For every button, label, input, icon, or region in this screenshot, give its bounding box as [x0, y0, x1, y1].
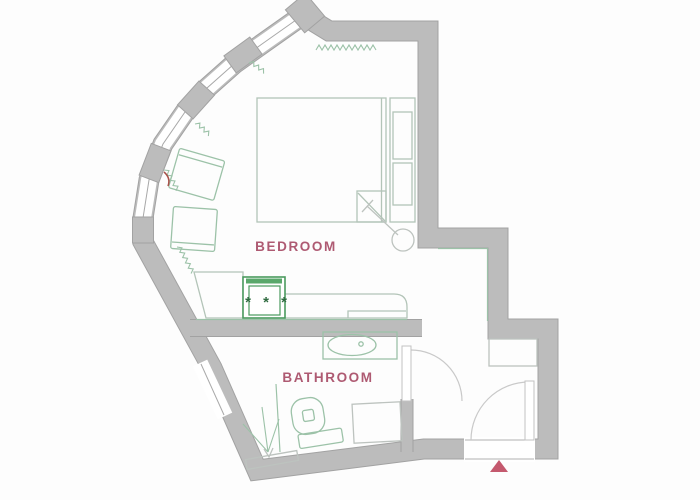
wall-accent-mark — [164, 172, 169, 186]
toilet — [289, 393, 343, 449]
armchair — [171, 207, 218, 252]
wall-pier — [133, 217, 154, 243]
entrance-door-swing — [471, 382, 529, 440]
stove-back-panel — [246, 279, 282, 284]
curtain-squiggle — [195, 121, 211, 136]
kitchenette: * * * — [194, 272, 407, 318]
shower-glass-partition — [276, 384, 280, 452]
bedroom-label: BEDROOM — [255, 239, 337, 254]
sink-basin — [328, 335, 376, 356]
nightstand-shelf — [393, 112, 412, 159]
bathroom-door-swing — [411, 350, 462, 401]
nightstand-shelf — [393, 163, 412, 205]
stove: * * * — [243, 277, 291, 318]
floor-lamp-shade — [392, 229, 414, 251]
kitchen-counter-left — [194, 272, 243, 318]
hallway-closet — [489, 339, 537, 366]
armchair — [168, 148, 224, 200]
bathroom-label: BATHROOM — [282, 370, 373, 385]
stove-burners: * * * — [245, 294, 291, 311]
curtain-squiggle — [249, 60, 266, 74]
entrance-opening — [464, 437, 535, 462]
sink-faucet — [359, 342, 363, 346]
bathroom-door-leaf — [402, 346, 411, 401]
floor-plan-drawing: BEDROOM * * * BATHROOM — [0, 0, 700, 500]
wall-pier — [139, 143, 171, 182]
curtain-squiggle — [316, 45, 376, 50]
exterior-walls — [133, 0, 549, 470]
entrance-door-leaf — [525, 381, 534, 440]
floor-plan: BEDROOM * * * BATHROOM — [0, 0, 700, 500]
kitchen-counter-long — [284, 294, 407, 318]
curtain-squiggle — [164, 168, 179, 191]
corridor-wall-trim — [438, 249, 488, 322]
washing-machine — [352, 402, 402, 443]
